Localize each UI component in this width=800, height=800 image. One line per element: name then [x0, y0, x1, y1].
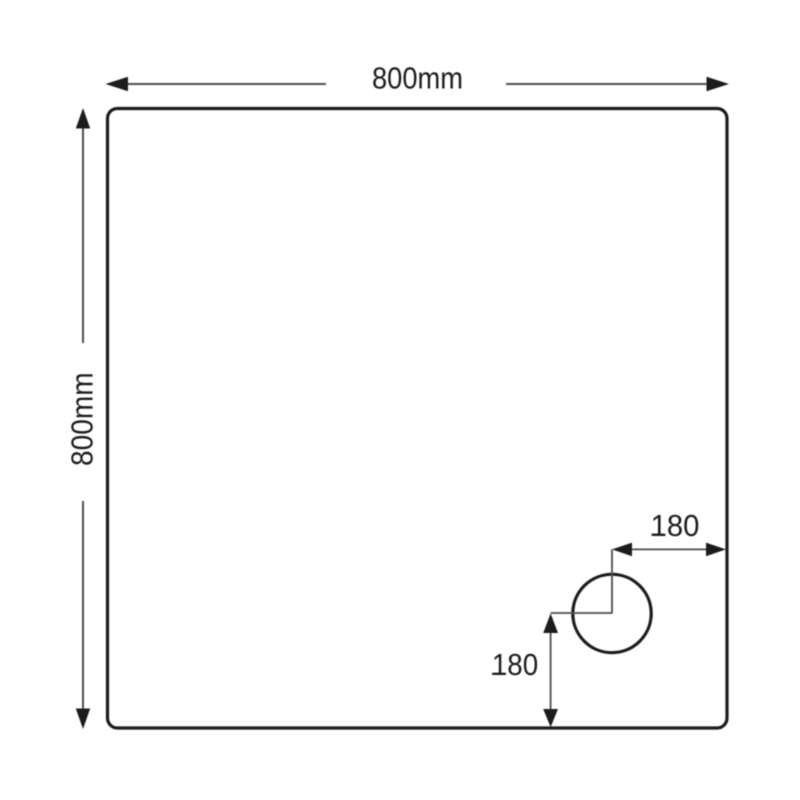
svg-text:800mm: 800mm — [65, 372, 100, 466]
svg-text:180: 180 — [492, 647, 538, 682]
svg-text:180: 180 — [651, 508, 700, 543]
svg-text:800mm: 800mm — [372, 61, 463, 96]
